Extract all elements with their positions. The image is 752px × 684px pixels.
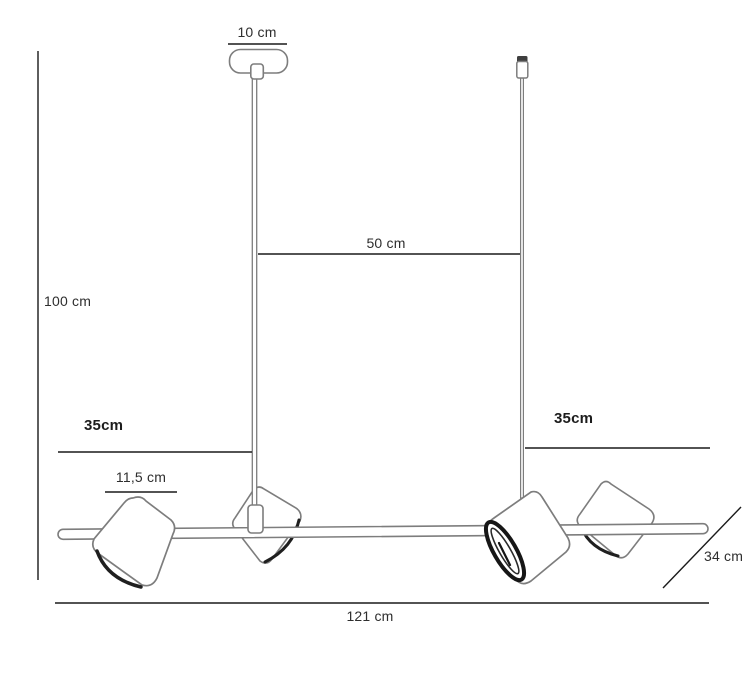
shade-back-left	[233, 487, 301, 563]
dim-label-shade-width: 11,5 cm	[116, 470, 166, 485]
shade-back-right	[577, 482, 654, 558]
dim-label-left-drop: 35cm	[84, 418, 123, 435]
lamp-line-drawing	[0, 0, 752, 684]
canopy-stem	[251, 64, 263, 79]
dimension-diagram: 10 cm 50 cm 100 cm 35cm 11,5 cm 35cm 121…	[0, 0, 752, 684]
dim-label-rod-spacing: 50 cm	[366, 236, 405, 251]
left-rod	[252, 78, 256, 508]
rod-connector	[248, 505, 263, 533]
cable-fitting	[517, 62, 528, 79]
right-cable	[521, 78, 524, 498]
dim-label-right-drop: 35cm	[554, 411, 593, 428]
shade-front-left	[93, 497, 175, 587]
shade-front-right	[479, 492, 570, 586]
dim-label-canopy-width: 10 cm	[237, 25, 276, 40]
dim-label-depth: 34 cm	[704, 549, 743, 564]
dim-label-overall-height: 100 cm	[44, 294, 91, 309]
dim-label-overall-width: 121 cm	[346, 609, 393, 624]
